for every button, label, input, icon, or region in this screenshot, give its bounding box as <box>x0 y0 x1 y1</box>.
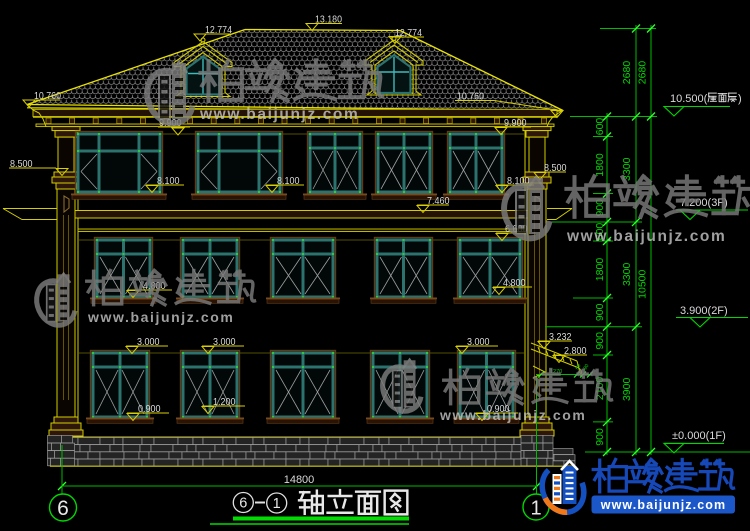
svg-text:www.baijunjz.com: www.baijunjz.com <box>566 228 726 245</box>
svg-text:6: 6 <box>239 496 247 512</box>
svg-text:2680: 2680 <box>637 61 649 85</box>
svg-text:6: 6 <box>57 497 69 520</box>
svg-text:3900: 3900 <box>621 378 633 402</box>
svg-text:3.900(2F): 3.900(2F) <box>680 305 728 317</box>
svg-text:): ) <box>738 93 742 105</box>
svg-text:10500: 10500 <box>637 269 649 298</box>
svg-text:1: 1 <box>273 496 281 512</box>
svg-text:1: 1 <box>530 498 541 520</box>
svg-text:www.baijunjz.com: www.baijunjz.com <box>439 407 586 423</box>
svg-text:±0.000(1F): ±0.000(1F) <box>672 430 726 442</box>
svg-text:2680: 2680 <box>621 61 633 85</box>
svg-text:10.500(: 10.500( <box>670 93 708 105</box>
svg-text:900: 900 <box>594 428 606 446</box>
svg-text:3300: 3300 <box>621 263 633 287</box>
svg-text:600: 600 <box>594 118 606 136</box>
svg-text:www.baijunjz.com: www.baijunjz.com <box>600 498 726 512</box>
svg-text:900: 900 <box>594 303 606 321</box>
svg-text:www.baijunjz.com: www.baijunjz.com <box>199 106 359 123</box>
svg-text:1800: 1800 <box>594 258 606 282</box>
svg-text:1800: 1800 <box>594 153 606 177</box>
svg-text:900: 900 <box>594 332 606 350</box>
svg-text:14800: 14800 <box>284 474 315 486</box>
svg-text:www.baijunjz.com: www.baijunjz.com <box>87 309 234 325</box>
